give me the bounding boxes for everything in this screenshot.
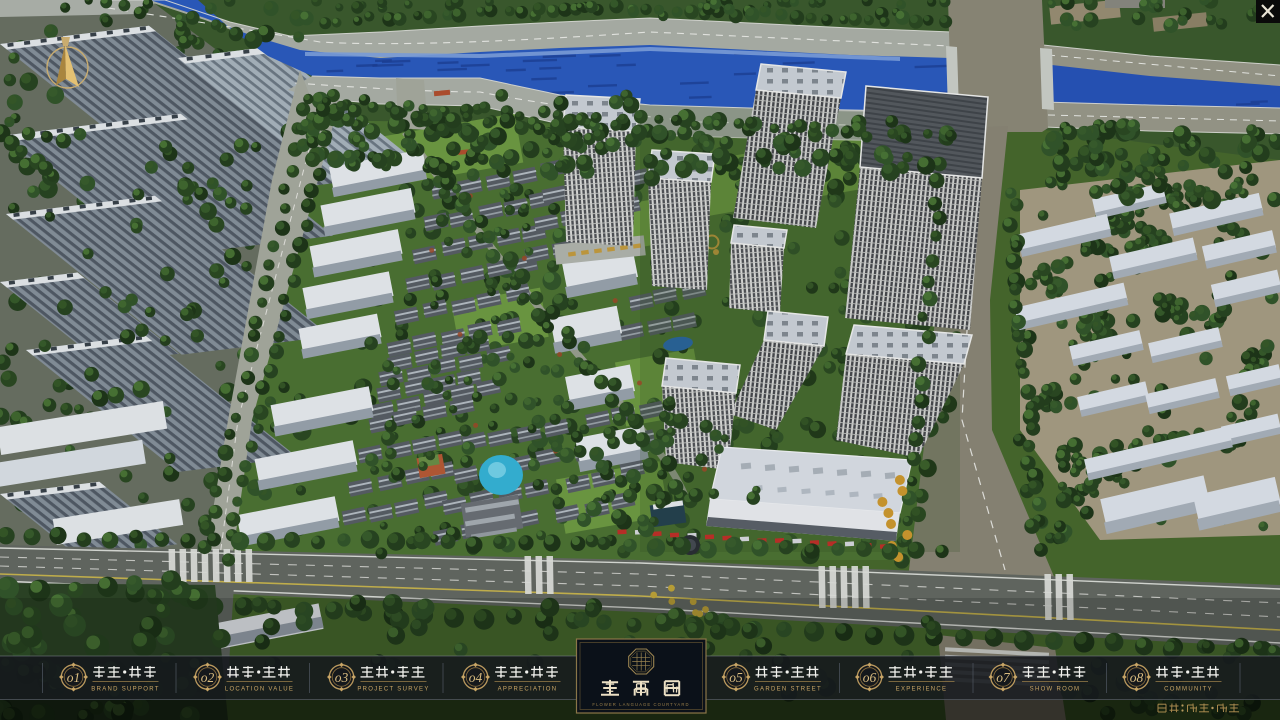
svg-text:o3: o3 — [335, 670, 349, 685]
svg-text:LOCATION VALUE: LOCATION VALUE — [225, 687, 294, 693]
svg-text:o8: o8 — [1130, 670, 1144, 685]
svg-text:GARDEN STREET: GARDEN STREET — [754, 687, 822, 693]
svg-text:o6: o6 — [863, 670, 877, 685]
svg-text:o5: o5 — [729, 670, 743, 685]
svg-text:SHOW ROOM: SHOW ROOM — [1030, 687, 1081, 693]
svg-text:COMMUNITY: COMMUNITY — [1164, 687, 1213, 693]
svg-text:EXPERIENCE: EXPERIENCE — [896, 687, 948, 693]
svg-text:FLOWER LANGUAGE COURTYARD: FLOWER LANGUAGE COURTYARD — [592, 702, 689, 707]
svg-text:o2: o2 — [201, 670, 215, 685]
svg-text:BRAND SUPPORT: BRAND SUPPORT — [91, 687, 159, 693]
svg-text:o4: o4 — [469, 670, 483, 685]
svg-text:APPRECIATION: APPRECIATION — [498, 687, 558, 693]
svg-text:o1: o1 — [67, 670, 81, 685]
svg-text:PROJECT SURVEY: PROJECT SURVEY — [357, 687, 429, 693]
svg-text:o7: o7 — [996, 670, 1011, 685]
